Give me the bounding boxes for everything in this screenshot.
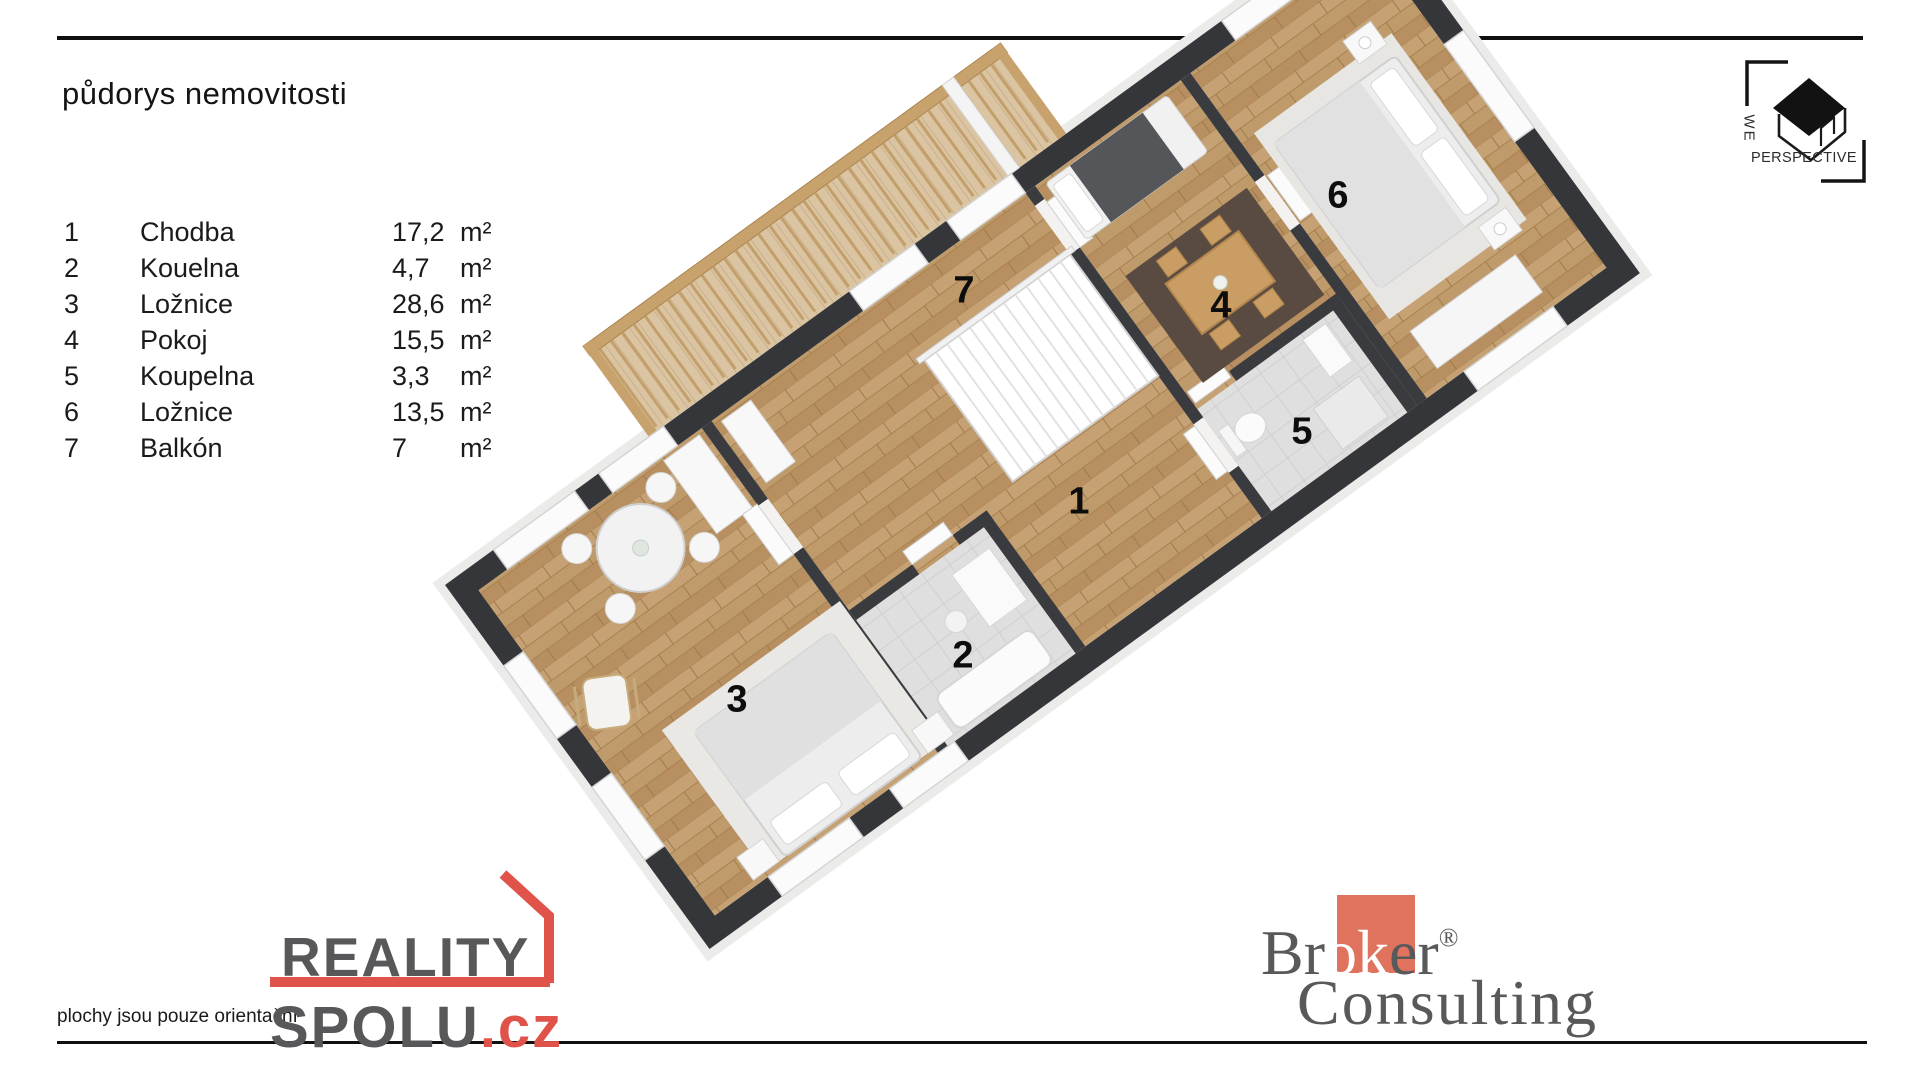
reality-spolu-word2-text: SPOLU xyxy=(270,995,480,1060)
page: { "title": "půdorys nemovitosti", "legen… xyxy=(0,0,1920,1080)
broker-consulting-line2: Consulting xyxy=(1297,966,1598,1040)
reality-spolu-word2: SPOLU.cz xyxy=(270,994,563,1061)
we-perspective-line2: PERSPECTIVE xyxy=(1751,150,1857,166)
plan-room-label-4: 4 xyxy=(1210,285,1231,328)
reality-spolu-word1: REALITY xyxy=(281,925,530,989)
registered-mark: ® xyxy=(1439,923,1459,952)
disclaimer-text: plochy jsou pouze orientační xyxy=(57,1006,298,1028)
plan-room-label-1: 1 xyxy=(1068,481,1089,524)
plan-room-label-3: 3 xyxy=(726,679,747,722)
bracket-top-left xyxy=(1747,62,1788,106)
we-perspective-line1: WE xyxy=(1741,114,1758,142)
reality-spolu-tld: .cz xyxy=(480,995,563,1060)
plan-room-label-6: 6 xyxy=(1327,175,1348,218)
plan-room-label-7: 7 xyxy=(953,270,974,313)
we-perspective-house-icon xyxy=(1773,78,1845,160)
plan-room-label-5: 5 xyxy=(1291,411,1312,454)
plan-room-label-2: 2 xyxy=(952,635,973,678)
